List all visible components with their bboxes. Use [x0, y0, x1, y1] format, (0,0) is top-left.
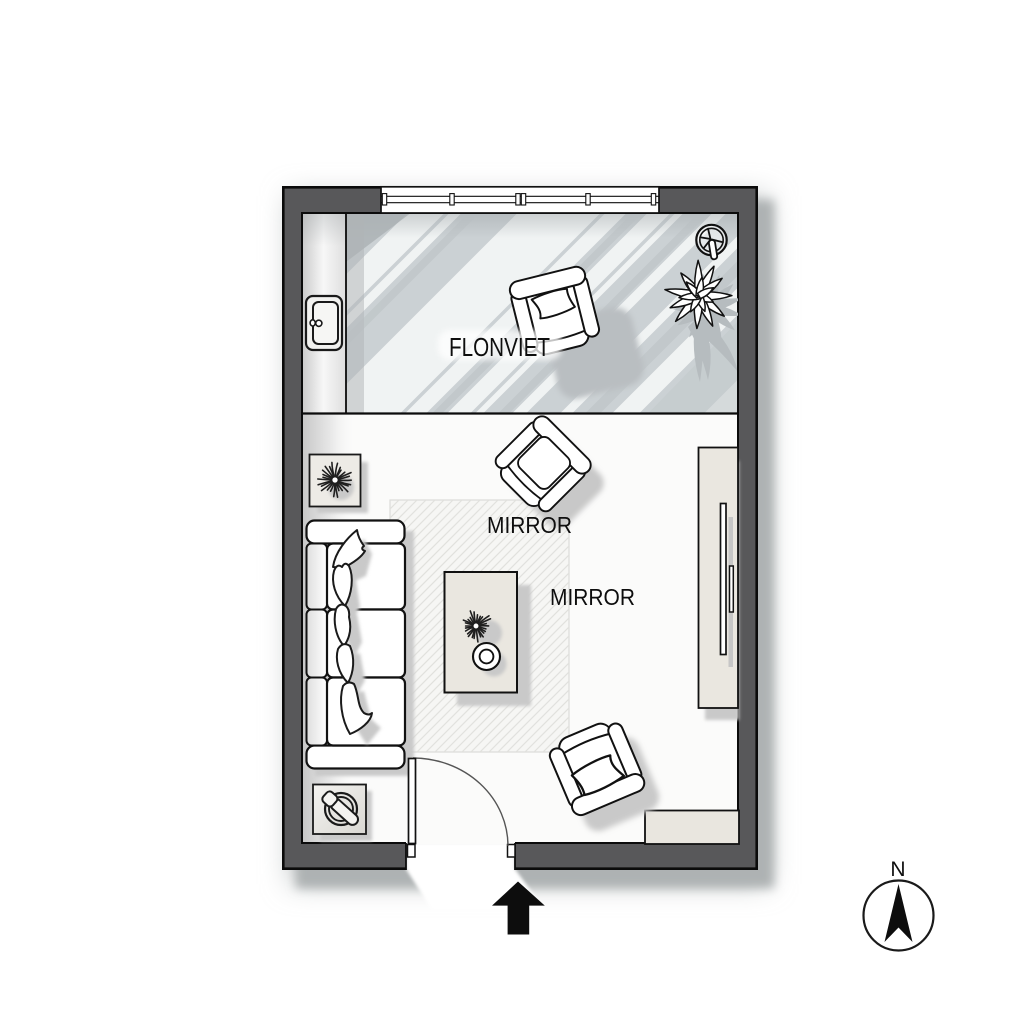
svg-text:MIRROR: MIRROR	[550, 584, 635, 610]
svg-text:FLONVIET: FLONVIET	[449, 332, 550, 362]
svg-text:MIRROR: MIRROR	[487, 512, 572, 538]
svg-text:N: N	[890, 858, 905, 881]
